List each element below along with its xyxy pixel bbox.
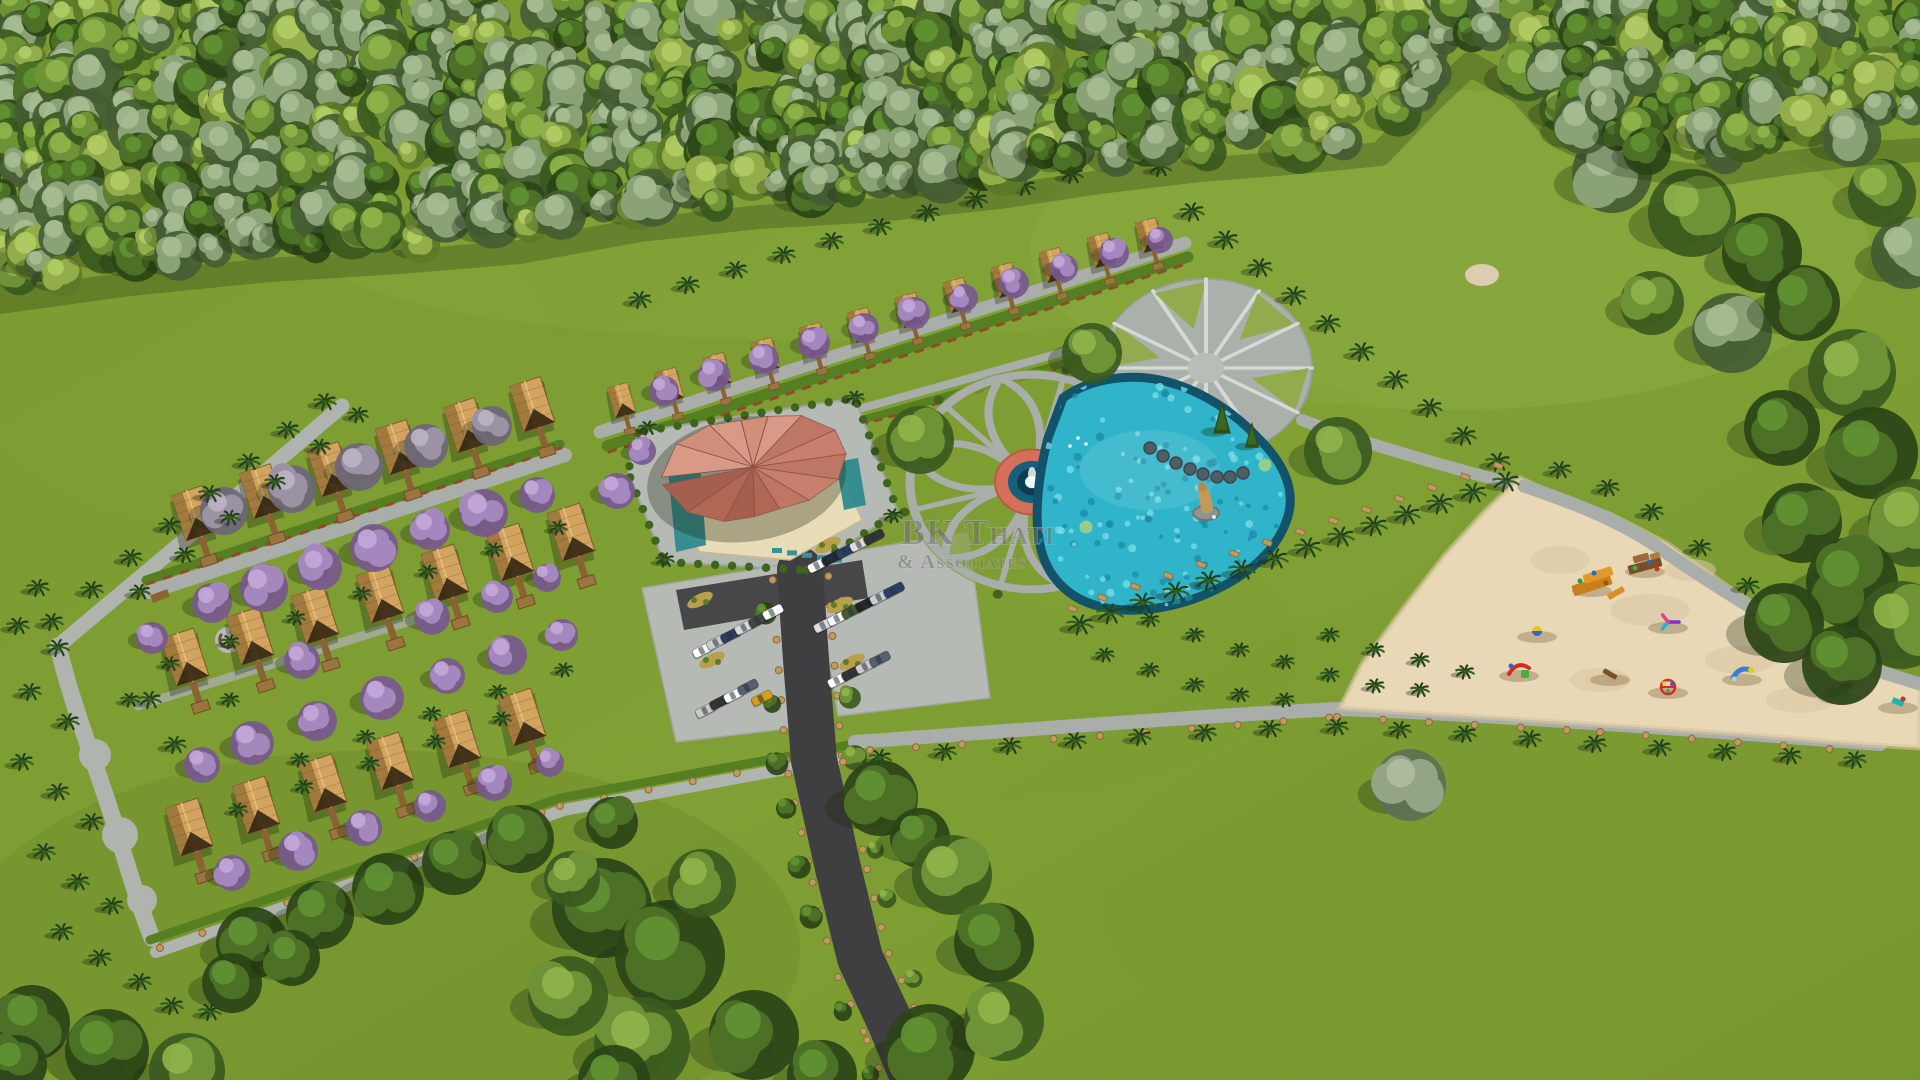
render-canvas: BK Thati & Associates xyxy=(0,0,1920,1080)
watermark-line1: BK Thati xyxy=(901,512,1055,552)
watermark-line2: & Associates xyxy=(897,551,1028,573)
sand-patch xyxy=(1465,264,1499,286)
resort-site-plan-rendering: BK Thati & Associates xyxy=(0,0,1920,1080)
